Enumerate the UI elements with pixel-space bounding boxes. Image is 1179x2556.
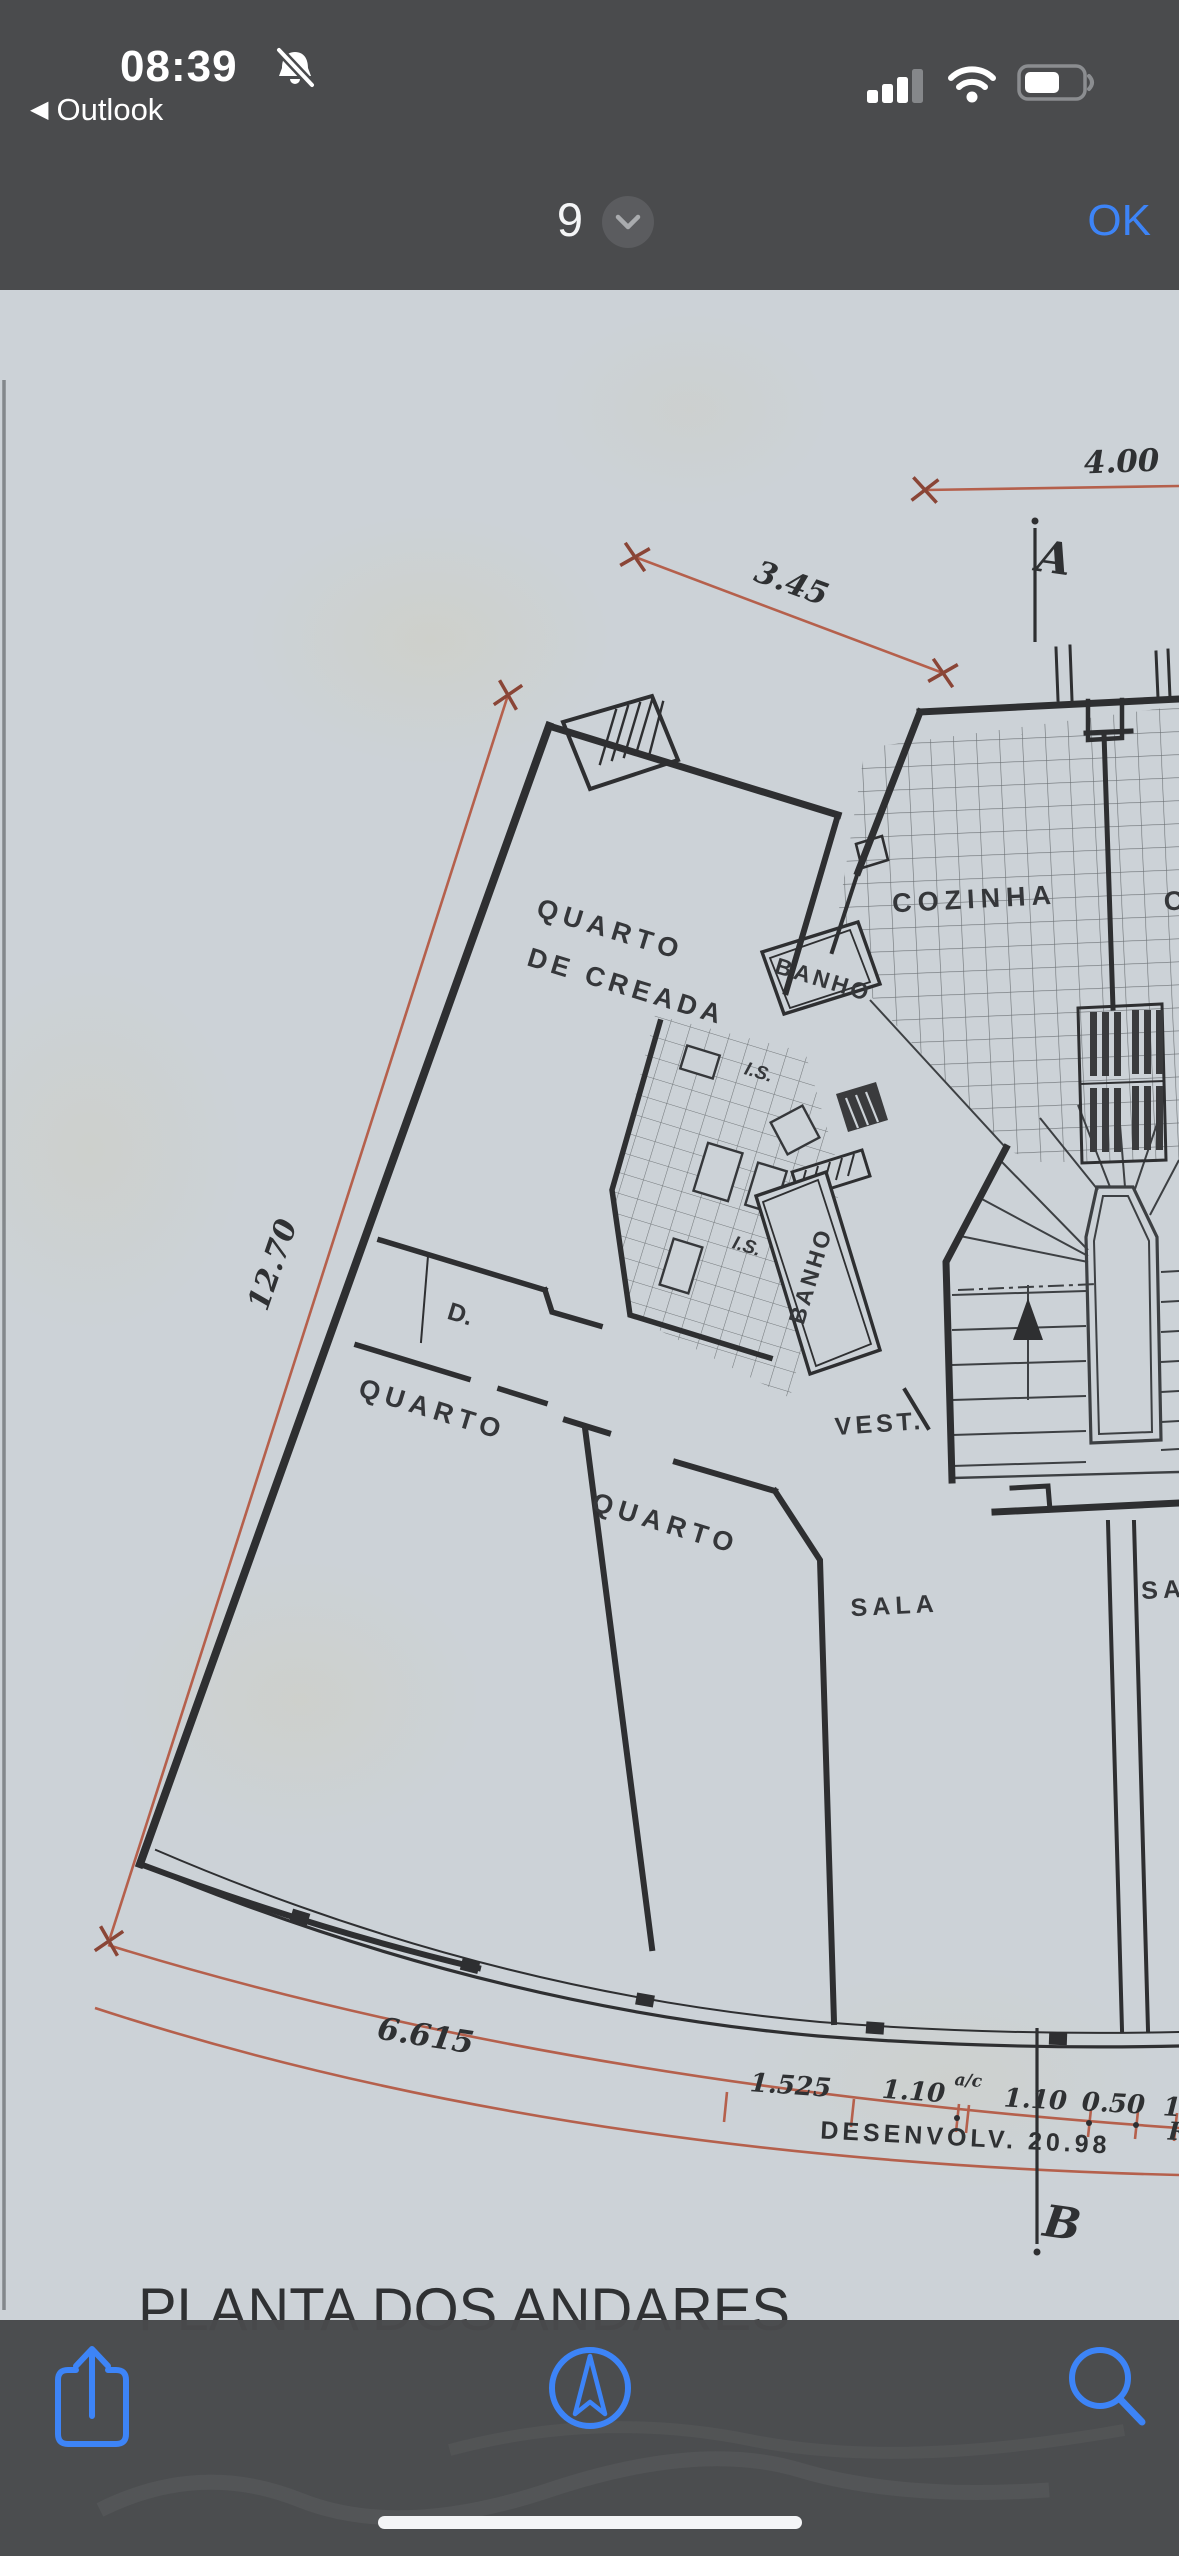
viewer-header: 9 OK	[0, 178, 1179, 278]
search-icon[interactable]	[1062, 2342, 1152, 2438]
bottom-toolbar	[0, 2320, 1179, 2556]
room-label-living: SALA	[850, 1590, 939, 1623]
dim-develop-partial: R	[1166, 2116, 1179, 2146]
dim-seg-1: 1.525	[749, 2068, 832, 2104]
room-label-closet: D.	[444, 1297, 476, 1331]
ok-button[interactable]: OK	[1087, 196, 1151, 246]
room-label-kitchen-adjacent: C	[1163, 886, 1179, 917]
dim-seg-3: 1.10	[1003, 2083, 1068, 2116]
share-icon[interactable]	[52, 2342, 132, 2452]
dim-top-width: 4.00	[1083, 443, 1160, 482]
status-bar: 08:39 ◀ Outlook	[0, 0, 1179, 130]
wifi-icon	[943, 60, 1001, 106]
document-canvas[interactable]: QUARTO DE CREADA BANHO BANHO I.S. I.S. C…	[0, 290, 1179, 2556]
back-to-outlook-button[interactable]: ◀ Outlook	[30, 92, 163, 128]
markup-compass-icon[interactable]	[544, 2342, 636, 2434]
system-status-icons	[865, 60, 1101, 106]
page-menu-button[interactable]	[602, 196, 654, 248]
floor-plan-drawing: QUARTO DE CREADA BANHO BANHO I.S. I.S. C…	[0, 0, 1179, 2556]
dim-seg-2-note: a/c	[954, 2070, 984, 2092]
top-chrome: 08:39 ◀ Outlook	[0, 0, 1179, 290]
dim-seg-4: 0.50	[1081, 2087, 1146, 2120]
room-label-maid-2: DE CREADA	[524, 942, 729, 1031]
back-chevron-icon: ◀	[30, 98, 48, 122]
battery-icon	[1017, 60, 1101, 106]
dim-facade-arc: 6.615	[375, 2011, 477, 2062]
development-note: DESENVOLV. 20.98	[820, 2116, 1112, 2159]
home-indicator[interactable]	[378, 2516, 802, 2529]
page-indicator: 9	[540, 192, 600, 247]
chevron-down-icon	[613, 212, 643, 232]
room-label-bedroom-left: QUARTO	[355, 1373, 510, 1446]
room-label-vestibule: VEST.	[834, 1407, 925, 1441]
clock: 08:39	[120, 42, 238, 92]
dim-left-length: 12.70	[241, 1215, 305, 1315]
dim-seg-2: 1.10	[881, 2075, 946, 2109]
room-label-living-adjacent: SA	[1141, 1575, 1179, 1605]
bell-slash-icon	[272, 46, 318, 97]
cell-signal-icon	[865, 60, 927, 106]
room-label-bedroom-middle: QUARTO	[588, 1487, 743, 1560]
stair-direction-arrow	[1013, 1298, 1043, 1340]
section-marker-b: B	[1038, 2196, 1084, 2252]
back-app-label: Outlook	[56, 92, 163, 128]
